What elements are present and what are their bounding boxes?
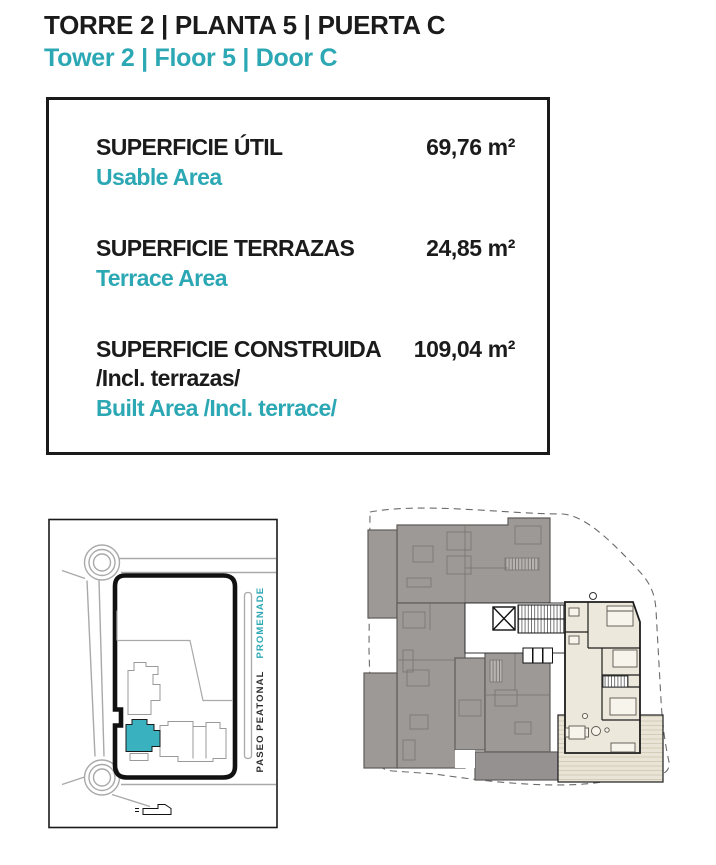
usable-area-label-es: SUPERFICIE ÚTIL [96,133,283,163]
site-map-border [49,520,277,828]
area-row-terrace-labels: SUPERFICIE TERRAZAS Terrace Area [96,234,354,294]
entrance-marker-icon [590,593,597,600]
paseo-peatonal-label: PASEO PEATONAL [255,671,266,773]
area-row-built: SUPERFICIE CONSTRUIDA /Incl. terrazas/ B… [96,335,515,425]
area-row-built-labels: SUPERFICIE CONSTRUIDA /Incl. terrazas/ B… [96,335,381,425]
usable-area-label-en: Usable Area [96,163,283,193]
building-core [465,603,568,653]
unit-door-c [558,593,663,783]
promenade-label: PROMENADE [255,587,266,659]
built-area-label-en: Built Area /Incl. terrace/ [96,394,381,424]
unit-closet-hatch [603,676,628,687]
promenade-strip [245,593,252,759]
staircase-icon [518,605,565,633]
built-area-value: 109,04 m² [414,335,515,363]
area-row-terrace: SUPERFICIE TERRAZAS Terrace Area 24,85 m… [96,234,515,294]
terrace-area-value: 24,85 m² [426,234,515,262]
plan-notch [455,750,475,768]
area-row-usable-labels: SUPERFICIE ÚTIL Usable Area [96,133,283,193]
page-title-english: Tower 2 | Floor 5 | Door C [44,44,337,73]
floor-plan [355,500,716,865]
terrace-area-label-en: Terrace Area [96,264,354,294]
built-area-label-sub: /Incl. terrazas/ [96,364,381,394]
area-row-usable: SUPERFICIE ÚTIL Usable Area 69,76 m² [96,133,515,193]
page-canvas: TORRE 2 | PLANTA 5 | PUERTA C Tower 2 | … [0,0,716,865]
elevator-icon [493,607,515,630]
terrace-area-label-es: SUPERFICIE TERRAZAS [96,234,354,264]
usable-area-value: 69,76 m² [426,133,515,161]
area-summary-box: SUPERFICIE ÚTIL Usable Area 69,76 m² SUP… [46,97,550,455]
page-title-spanish: TORRE 2 | PLANTA 5 | PUERTA C [44,10,445,41]
roundabout-top [85,545,120,580]
site-location-map: PROMENADE PASEO PEATONAL [48,518,278,829]
built-area-label-es: SUPERFICIE CONSTRUIDA [96,335,381,365]
storage-boxes [523,648,553,663]
